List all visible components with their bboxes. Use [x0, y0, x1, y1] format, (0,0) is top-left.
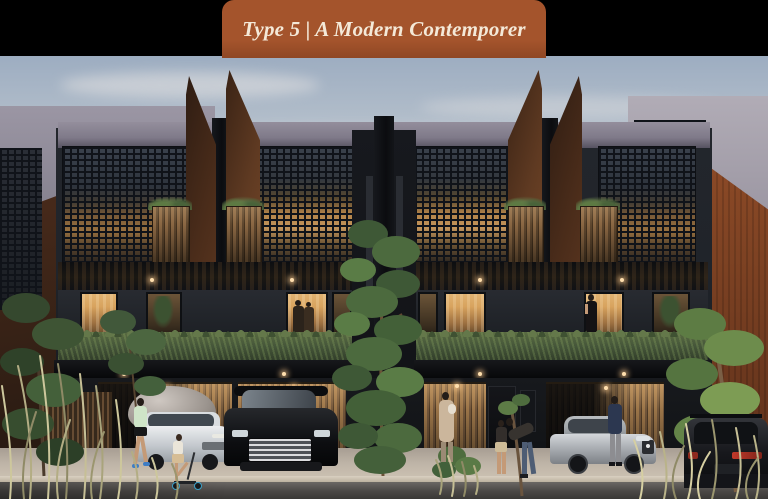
ornamental-grasses — [0, 56, 768, 499]
grass-clump-right — [634, 420, 759, 499]
title-text: Type 5 | A Modern Contemporer — [242, 17, 526, 42]
grass-clump-center — [436, 456, 478, 496]
townhouse-exterior-render — [0, 56, 768, 499]
grass-clump-left — [2, 356, 178, 499]
page-background: Type 5 | A Modern Contemporer — [0, 0, 768, 499]
title-banner: Type 5 | A Modern Contemporer — [222, 0, 546, 58]
